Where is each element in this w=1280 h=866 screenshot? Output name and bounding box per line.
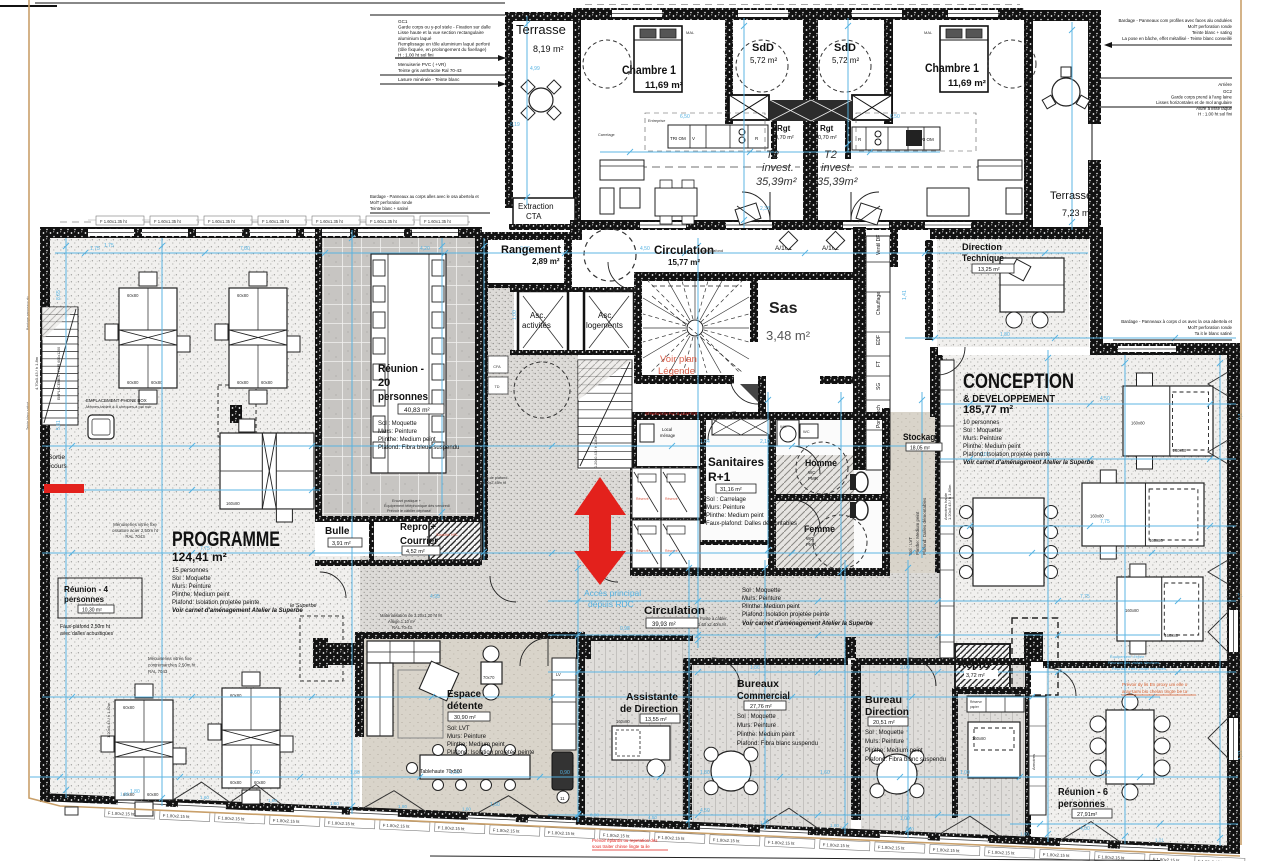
svg-text:Espace: Espace	[447, 689, 481, 700]
svg-text:1,60: 1,60	[490, 802, 500, 808]
svg-text:Technique: Technique	[962, 253, 1004, 263]
svg-text:T2: T2	[766, 149, 779, 161]
svg-text:papier: papier	[970, 705, 980, 709]
svg-text:F 1.60x1.35 ht: F 1.60x1.35 ht	[100, 219, 128, 224]
svg-text:F 1.60x1.35 ht: F 1.60x1.35 ht	[370, 219, 398, 224]
svg-text:Murs: Peinture: Murs: Peinture	[378, 429, 418, 435]
svg-text:Bureaux: Bureaux	[737, 679, 779, 690]
svg-text:Courrier: Courrier	[400, 536, 438, 547]
svg-text:ossature acier 2,50m ht: ossature acier 2,50m ht	[112, 528, 159, 533]
svg-text:160x80: 160x80	[1149, 538, 1163, 543]
svg-text:contremarches 2,50m ht: contremarches 2,50m ht	[148, 663, 196, 668]
svg-text:LV: LV	[556, 672, 561, 677]
svg-text:1,00: 1,00	[960, 770, 970, 776]
svg-text:Carrelage: Carrelage	[598, 133, 615, 137]
svg-text:T2: T2	[824, 149, 837, 161]
svg-text:11,69 m²: 11,69 m²	[645, 80, 683, 90]
svg-text:F 1.60x1.35 ht: F 1.60x1.35 ht	[262, 219, 290, 224]
svg-text:WC: WC	[803, 429, 810, 434]
svg-text:160x80: 160x80	[226, 501, 240, 506]
svg-text:Lisses horizontales et de mol: Lisses horizontales et de mol angulaire	[1156, 100, 1232, 105]
svg-text:aray tami bio chelan tingte be: aray tami bio chelan tingte be ta	[1122, 689, 1188, 694]
svg-text:1,86: 1,86	[750, 665, 760, 671]
svg-text:27,91m²: 27,91m²	[1077, 812, 1097, 818]
svg-text:Réunion - 4: Réunion - 4	[64, 584, 108, 594]
svg-text:0,98: 0,98	[590, 812, 599, 817]
svg-text:Asc.: Asc.	[598, 311, 614, 320]
svg-text:Garde corps prend à l'ang lai: Garde corps prend à l'ang laine	[1171, 95, 1233, 100]
svg-text:MolT perforation ronde: MolT perforation ronde	[370, 200, 413, 205]
svg-text:Réserve: Réserve	[970, 700, 982, 704]
svg-text:0,70 m²: 0,70 m²	[775, 135, 794, 141]
svg-text:Plinthe: Medium peint: Plinthe: Medium peint	[865, 748, 923, 754]
svg-text:1,80: 1,80	[905, 826, 914, 831]
svg-text:MolT perforation ronde: MolT perforation ronde	[1188, 24, 1233, 29]
svg-text:CFA: CFA	[493, 365, 501, 369]
svg-text:11: 11	[560, 796, 565, 801]
svg-text:Sol : Moquette: Sol : Moquette	[865, 730, 904, 736]
svg-text:Terrasse: Terrasse	[516, 22, 566, 37]
svg-text:Ventil DF: Ventil DF	[893, 232, 899, 252]
svg-text:Teinte blanc + satiné: Teinte blanc + satiné	[370, 206, 409, 211]
svg-text:2,89 m²: 2,89 m²	[532, 257, 560, 266]
svg-text:31,16 m²: 31,16 m²	[720, 487, 742, 493]
svg-text:160x80: 160x80	[1090, 514, 1104, 519]
svg-text:10,30 m²: 10,30 m²	[82, 608, 102, 614]
svg-text:Assistante: Assistante	[626, 692, 678, 703]
svg-text:Allège 1.10 m²: Allège 1.10 m²	[388, 619, 416, 624]
svg-text:160x80: 160x80	[616, 719, 630, 724]
svg-text:13,25 m²: 13,25 m²	[978, 267, 1000, 273]
svg-text:SdD: SdD	[752, 42, 774, 54]
svg-text:Plinthe: Medium peint: Plinthe: Medium peint	[378, 437, 436, 443]
svg-text:160x80: 160x80	[972, 736, 986, 741]
svg-text:Sol : Carrelage: Sol : Carrelage	[706, 497, 747, 503]
svg-text:6,50: 6,50	[680, 114, 690, 120]
svg-text:4,50: 4,50	[1080, 826, 1090, 832]
svg-text:Faux-plafond: Dalles démontabl: Faux-plafond: Dalles démontables	[706, 521, 797, 527]
svg-text:Plinthe: Medium peint: Plinthe: Medium peint	[447, 742, 505, 748]
svg-text:Teinte blanc + sating: Teinte blanc + sating	[1192, 30, 1233, 35]
svg-text:11,69 m²: 11,69 m²	[948, 78, 986, 88]
svg-text:Entreprise: Entreprise	[648, 119, 665, 123]
svg-text:35,39m²: 35,39m²	[817, 176, 858, 188]
svg-text:60x80: 60x80	[127, 293, 139, 298]
svg-text:6,50: 6,50	[890, 114, 900, 120]
svg-text:ménage: ménage	[660, 433, 676, 438]
svg-text:1,80: 1,80	[120, 792, 129, 797]
svg-text:Voir carnet d'aménagement Atel: Voir carnet d'aménagement Atelier la Sup…	[742, 621, 873, 627]
svg-text:TRI OM: TRI OM	[670, 136, 686, 141]
svg-text:20,51 m²: 20,51 m²	[873, 720, 895, 726]
svg-text:18,05 m²: 18,05 m²	[910, 446, 930, 452]
svg-text:1,80: 1,80	[1000, 332, 1010, 338]
svg-text:Direction: Direction	[962, 242, 1002, 252]
svg-text:WC: WC	[808, 470, 816, 475]
svg-text:Plafond: Fibra blanc suspendu: Plafond: Fibra blanc suspendu	[737, 741, 818, 747]
svg-text:Plinthe: Medium peint: Plinthe: Medium peint	[963, 444, 1021, 450]
svg-text:TD: TD	[494, 385, 499, 389]
svg-text:Homme: Homme	[805, 458, 837, 468]
svg-text:Ménuiseries vitrée fixe: Ménuiseries vitrée fixe	[113, 522, 157, 527]
svg-text:F 1.60x1.35 ht: F 1.60x1.35 ht	[424, 219, 452, 224]
svg-text:124,41 m²: 124,41 m²	[172, 550, 227, 564]
svg-text:1,41: 1,41	[902, 290, 908, 300]
svg-text:Réunion des visites électives: Réunion des visites électives	[1108, 660, 1159, 665]
svg-text:3,48 m²: 3,48 m²	[766, 328, 811, 343]
svg-text:1,80: 1,80	[130, 789, 140, 795]
svg-text:F 1.60x1.35 ht: F 1.60x1.35 ht	[316, 219, 344, 224]
svg-text:logements: logements	[586, 321, 623, 330]
svg-text:invest.: invest.	[762, 162, 794, 174]
svg-text:GC2: GC2	[1223, 89, 1233, 94]
svg-text:Plafond: Isolation projetée pe: Plafond: Isolation projetée peinte	[447, 750, 535, 756]
svg-text:Plinthe: Medium peint: Plinthe: Medium peint	[742, 604, 800, 610]
svg-text:4,50: 4,50	[700, 808, 710, 814]
svg-text:39,93 m²: 39,93 m²	[652, 622, 676, 628]
svg-text:Rangement: Rangement	[501, 244, 561, 256]
svg-text:8,65: 8,65	[56, 290, 62, 300]
svg-text:de Direction: de Direction	[620, 704, 678, 715]
svg-text:4,60: 4,60	[250, 770, 260, 776]
svg-text:depuis RDC: depuis RDC	[588, 599, 634, 609]
svg-text:La pose en bâche, effet métall: La pose en bâche, effet métallisé - Tein…	[1122, 36, 1232, 41]
svg-text:1,75: 1,75	[90, 246, 100, 252]
svg-text:Prévoir dy lis En proxy uni e: Prévoir dy lis En proxy uni elle o	[1122, 682, 1188, 687]
svg-text:invest.: invest.	[821, 162, 853, 174]
svg-text:Plafond: Isolation projetée pe: Plafond: Isolation projetée peinte	[172, 600, 260, 606]
svg-text:Prévoir éplantis ou repetation: Prévoir éplantis ou repetation des	[592, 838, 658, 843]
svg-text:Chauffage: Chauffage	[876, 292, 882, 315]
svg-text:Réunion -: Réunion -	[378, 363, 424, 375]
svg-text:1,80: 1,80	[350, 770, 360, 776]
svg-text:1,75: 1,75	[104, 243, 114, 249]
svg-text:(tôle fixquée, en prolongement: (tôle fixquée, en prolongement du fixe/l…	[398, 47, 487, 52]
svg-text:H : 1.00 ht sol fini: H : 1.00 ht sol fini	[398, 53, 434, 58]
svg-text:Ta it le blanc satiné: Ta it le blanc satiné	[1195, 331, 1233, 336]
svg-text:4,95: 4,95	[430, 594, 440, 600]
svg-text:4,50: 4,50	[640, 246, 650, 252]
svg-text:MAL: MAL	[686, 30, 695, 35]
svg-text:0,98: 0,98	[620, 626, 630, 632]
svg-text:8,19 m²: 8,19 m²	[533, 44, 564, 54]
svg-text:7,75: 7,75	[1100, 519, 1110, 525]
svg-text:Bardage - Panneaux au corps al: Bardage - Panneaux au corps alles avec l…	[370, 194, 480, 199]
svg-text:Faux-plafond 2,50m ht: Faux-plafond 2,50m ht	[60, 624, 111, 630]
svg-text:Plinthe: Medium peint: Plinthe: Medium peint	[737, 732, 795, 738]
svg-text:Murs: Peinture: Murs: Peinture	[706, 505, 746, 511]
svg-text:13,55 m²: 13,55 m²	[645, 717, 667, 723]
svg-text:Asc.: Asc.	[530, 311, 546, 320]
svg-text:Lasure minérale - Teinte blanc: Lasure minérale - Teinte blanc	[398, 77, 460, 82]
svg-text:1,60: 1,60	[462, 807, 471, 812]
svg-text:EMPLACEMENT PHONE BOX: EMPLACEMENT PHONE BOX	[86, 398, 147, 403]
svg-text:30,90 m²: 30,90 m²	[454, 715, 476, 721]
svg-text:Voir carnet d'aménagement Atel: Voir carnet d'aménagement Atelier la Sup…	[172, 608, 303, 614]
svg-text:2,33: 2,33	[760, 206, 770, 212]
svg-text:20: 20	[378, 377, 390, 389]
svg-text:Murs: Peinture: Murs: Peinture	[447, 734, 487, 740]
svg-text:0.80x2,45m ht: 0.80x2,45m ht	[482, 481, 507, 485]
svg-text:Voir carnet d'aménagement Atel: Voir carnet d'aménagement Atelier la Sup…	[963, 460, 1094, 466]
svg-text:Ménuiseries vitrée fixe: Ménuiseries vitrée fixe	[148, 656, 192, 661]
svg-text:Repro +: Repro +	[400, 522, 436, 533]
svg-text:EMPLACEMENT PMR 600x1200: EMPLACEMENT PMR 600x1200	[57, 347, 61, 400]
svg-text:Bulle: Bulle	[325, 526, 350, 537]
svg-text:Matérialisation de 3.20x1,20 h: Matérialisation de 3.20x1,20 ht M	[380, 613, 442, 618]
svg-text:40,83 m²: 40,83 m²	[404, 407, 430, 414]
svg-text:Chambre 1: Chambre 1	[622, 63, 676, 77]
svg-text:60x80: 60x80	[237, 380, 249, 385]
svg-text:Plinthe: Medium peint: Plinthe: Medium peint	[706, 513, 764, 519]
svg-text:1.20x0.43 / h 1.80m: 1.20x0.43 / h 1.80m	[947, 484, 952, 520]
svg-text:160x80: 160x80	[1125, 608, 1139, 613]
svg-text:Voir plan: Voir plan	[660, 354, 697, 365]
svg-text:H : 1.00 ht sol fini: H : 1.00 ht sol fini	[1198, 111, 1232, 116]
svg-text:Terrasse: Terrasse	[1050, 190, 1092, 202]
svg-text:4,99: 4,99	[530, 66, 540, 72]
svg-text:MolT perforation ronde: MolT perforation ronde	[1188, 325, 1233, 330]
svg-text:Murs: Peinture: Murs: Peinture	[742, 596, 782, 602]
svg-text:SG: SG	[876, 383, 882, 390]
svg-text:détente: détente	[447, 701, 483, 712]
svg-text:Armoires hautes 1.20x0.43 / h: Armoires hautes 1.20x0.43 / h 1.8m	[686, 676, 691, 740]
svg-text:V: V	[692, 136, 695, 141]
svg-text:Sortie: Sortie	[48, 454, 65, 461]
svg-text:1,80: 1,80	[398, 804, 407, 809]
svg-text:160x80: 160x80	[1164, 633, 1178, 638]
svg-text:Repro: Repro	[958, 659, 990, 671]
svg-text:Direction: Direction	[865, 707, 909, 718]
svg-text:Rgt: Rgt	[777, 124, 791, 133]
svg-text:1.20x0.43 / h 1.80m: 1.20x0.43 / h 1.80m	[594, 434, 598, 468]
svg-text:GC1: GC1	[398, 19, 408, 24]
svg-text:CTA: CTA	[526, 212, 542, 221]
svg-text:5,72 m²: 5,72 m²	[832, 56, 859, 65]
svg-text:Chambre 1: Chambre 1	[925, 61, 979, 75]
svg-text:Rgt: Rgt	[820, 124, 834, 133]
svg-text:Plafond: Dalles démontables: Plafond: Dalles démontables	[922, 497, 927, 555]
svg-text:1,00: 1,00	[512, 310, 518, 320]
svg-text:27,76 m²: 27,76 m²	[750, 704, 772, 710]
svg-text:1,21: 1,21	[1155, 837, 1164, 842]
svg-text:1.20x0.43 / h 1.82m: 1.20x0.43 / h 1.82m	[106, 702, 111, 738]
svg-text:Équipement d'épée: Équipement d'épée	[1110, 654, 1145, 659]
svg-text:MAL: MAL	[924, 30, 933, 35]
svg-text:Arrière: Arrière	[1218, 82, 1232, 87]
svg-text:Équipement téléphonique dès ve: Équipement téléphonique dès vendredi	[384, 503, 450, 508]
svg-text:60x80: 60x80	[237, 293, 249, 298]
svg-text:Sas: Sas	[769, 300, 798, 317]
svg-text:avec dalles acoustiques: avec dalles acoustiques	[60, 631, 114, 637]
svg-text:1,60: 1,60	[1100, 770, 1110, 776]
svg-text:1,04: 1,04	[700, 439, 710, 445]
svg-text:3,91 m²: 3,91 m²	[332, 541, 351, 547]
svg-text:0,90: 0,90	[560, 770, 570, 776]
svg-text:7,23 m²: 7,23 m²	[1062, 208, 1093, 218]
svg-text:4,52 m²: 4,52 m²	[406, 549, 425, 555]
svg-text:1,00: 1,00	[900, 816, 910, 822]
svg-text:Légende: Légende	[658, 366, 695, 377]
svg-text:SÉPARATION PVC À ADAPTER: SÉPARATION PVC À ADAPTER	[645, 411, 698, 416]
svg-text:aluminium laqué: aluminium laqué	[398, 36, 432, 41]
svg-text:0,70 m²: 0,70 m²	[818, 135, 837, 141]
svg-text:60x80: 60x80	[123, 705, 135, 710]
svg-text:1,60: 1,60	[830, 823, 839, 828]
svg-text:1,60: 1,60	[820, 770, 830, 776]
svg-text:4,20: 4,20	[420, 246, 430, 252]
svg-text:5,72 m²: 5,72 m²	[750, 56, 777, 65]
svg-text:Plinthe: Medium peint: Plinthe: Medium peint	[172, 592, 230, 598]
svg-text:Commercial: Commercial	[737, 691, 790, 702]
svg-text:Ventil DF: Ventil DF	[876, 235, 882, 255]
svg-text:7,75: 7,75	[1080, 594, 1090, 600]
svg-text:RAL 7043: RAL 7043	[125, 534, 145, 539]
svg-text:15,77 m²: 15,77 m²	[668, 258, 700, 267]
svg-text:Prévoir le câblier déphasé: Prévoir le câblier déphasé	[387, 509, 431, 513]
svg-text:Sol : Moquette: Sol : Moquette	[963, 428, 1002, 434]
svg-text:Bardage - Panneaux com profile: Bardage - Panneaux com profiles avec fac…	[1119, 18, 1233, 23]
svg-text:personnes: personnes	[1058, 799, 1105, 810]
svg-text:60x80: 60x80	[127, 380, 139, 385]
svg-text:8,19: 8,19	[510, 122, 520, 128]
svg-text:70x70: 70x70	[483, 675, 495, 680]
svg-text:Lisse haute et la vue section: Lisse haute et la vue section rectangula…	[398, 30, 484, 35]
svg-text:60x80: 60x80	[261, 380, 273, 385]
svg-text:FT: FT	[876, 361, 882, 367]
svg-text:Réservé: Réservé	[636, 549, 649, 553]
svg-text:Encart pratique +: Encart pratique +	[392, 499, 422, 503]
svg-text:Menuiserie PVC ( +VR): Menuiserie PVC ( +VR)	[398, 62, 446, 67]
svg-text:Stockage: Stockage	[903, 432, 940, 443]
svg-text:35,39m²: 35,39m²	[756, 176, 797, 188]
svg-text:Réunion - 6: Réunion - 6	[1058, 787, 1108, 798]
svg-text:Murs: Peinture: Murs: Peinture	[865, 739, 905, 745]
svg-text:Sol : Moquette: Sol : Moquette	[378, 421, 417, 427]
svg-text:160x80: 160x80	[1131, 421, 1145, 426]
svg-text:Plinthe: Medium peint: Plinthe: Medium peint	[915, 511, 920, 555]
svg-text:Local: Local	[662, 427, 672, 432]
svg-text:le Superbe: le Superbe	[290, 603, 317, 609]
svg-text:Plafond: Isolation projetée pe: Plafond: Isolation projetée peinte	[742, 612, 830, 618]
svg-text:1,80: 1,80	[268, 798, 277, 803]
svg-text:1,60: 1,60	[1020, 831, 1029, 836]
svg-text:60x80: 60x80	[230, 780, 242, 785]
svg-text:Bureau: Bureau	[865, 695, 902, 706]
svg-text:Faux plafond: Faux plafond	[700, 248, 723, 253]
svg-text:WC: WC	[780, 424, 787, 429]
svg-text:10 personnes: 10 personnes	[963, 420, 999, 426]
svg-text:4,50: 4,50	[1100, 396, 1110, 402]
svg-text:7,80: 7,80	[240, 246, 250, 252]
svg-text:Armoires: Armoires	[1031, 754, 1036, 770]
svg-text:1,80: 1,80	[700, 770, 710, 776]
svg-text:Réservé: Réservé	[636, 497, 649, 501]
svg-text:Accès principal: Accès principal	[584, 588, 641, 598]
svg-text:Plafond: Fibra blanc suspendu: Plafond: Fibra blanc suspendu	[865, 757, 946, 763]
svg-text:60x80: 60x80	[151, 380, 163, 385]
svg-text:4.70x0.43 / h 1.8m: 4.70x0.43 / h 1.8m	[34, 356, 39, 390]
svg-text:CONCEPTION: CONCEPTION	[963, 370, 1074, 393]
svg-text:Réservé: Réservé	[665, 549, 678, 553]
svg-text:PMR: PMR	[808, 476, 819, 481]
svg-text:EDF: EDF	[876, 335, 882, 345]
svg-text:2,00: 2,00	[900, 665, 910, 671]
svg-text:Poste à câbler: Poste à câbler	[700, 616, 727, 621]
svg-text:Remplissage en tôle aluminium: Remplissage en tôle aluminium laqué perf…	[398, 41, 491, 46]
svg-text:3,72 m²: 3,72 m²	[966, 673, 985, 679]
svg-text:Plafond: Isolation projetée pe: Plafond: Isolation projetée peinte	[963, 452, 1051, 458]
svg-text:Stratifié HPL: Stratifié HPL	[436, 532, 459, 537]
svg-text:Circulation: Circulation	[644, 605, 705, 617]
svg-text:Sol : LVT: Sol : LVT	[908, 537, 913, 555]
svg-text:Tablehaute 70x500: Tablehaute 70x500	[420, 769, 462, 775]
svg-text:Sol : Moquette: Sol : Moquette	[742, 588, 781, 594]
svg-text:SdD: SdD	[834, 42, 856, 54]
svg-text:5,81: 5,81	[56, 420, 62, 430]
svg-text:1,60: 1,60	[200, 795, 209, 800]
svg-text:Pas de plafond: Pas de plafond	[482, 476, 507, 480]
svg-text:personnes: personnes	[378, 391, 428, 403]
svg-text:Extraction: Extraction	[518, 202, 554, 211]
svg-text:Mêmes tablett à 8 chèques à p: Mêmes tablett à 8 chèques à pal noir	[86, 404, 152, 409]
svg-text:185,77 m²: 185,77 m²	[963, 404, 1013, 416]
svg-text:F 1.60x1.35 ht: F 1.60x1.35 ht	[154, 219, 182, 224]
svg-text:personnes: personnes	[64, 594, 104, 604]
svg-text:Sol : Moquette: Sol : Moquette	[172, 576, 211, 582]
svg-text:Murs: Peinture: Murs: Peinture	[172, 584, 212, 590]
svg-text:Garde corps ou y-pol stele - F: Garde corps ou y-pol stele - Fixation su…	[398, 25, 491, 30]
svg-text:1.60 x2.40m M: 1.60 x2.40m M	[698, 622, 726, 627]
svg-text:15 personnes: 15 personnes	[172, 568, 208, 574]
svg-text:Bardage - Panneaux à corps d o: Bardage - Panneaux à corps d os avec la …	[1121, 319, 1233, 324]
svg-text:PMR: PMR	[806, 542, 817, 547]
svg-text:RAL 70-43: RAL 70-43	[392, 625, 413, 630]
svg-text:Femme: Femme	[804, 524, 835, 534]
svg-text:Sanitaires: Sanitaires	[708, 455, 764, 469]
svg-text:Sol: LVT: Sol: LVT	[447, 726, 470, 732]
svg-text:activités: activités	[522, 321, 551, 330]
svg-text:Réservé: Réservé	[665, 497, 678, 501]
svg-text:Porte tech: Porte tech	[876, 405, 882, 428]
svg-text:1,80: 1,80	[760, 820, 769, 825]
svg-text:R+1: R+1	[708, 470, 731, 484]
svg-text:WC: WC	[806, 536, 814, 541]
svg-text:sous traiter chinse lingte ta: sous traiter chinse lingte ta ile	[592, 844, 650, 849]
svg-text:F 1.60x1.35 ht: F 1.60x1.35 ht	[208, 219, 236, 224]
svg-text:160x80: 160x80	[1173, 448, 1187, 453]
svg-text:60x80: 60x80	[147, 792, 159, 797]
svg-text:1,60: 1,60	[330, 801, 339, 806]
svg-text:2,10: 2,10	[760, 439, 770, 445]
svg-text:PROGRAMME: PROGRAMME	[172, 528, 280, 551]
svg-text:Réunion d'être visiter électi: Réunion d'être visiter électives	[1112, 666, 1166, 671]
svg-text:secours: secours	[44, 463, 68, 470]
svg-text:4,50: 4,50	[648, 815, 657, 820]
svg-text:RAL 7043: RAL 7043	[148, 669, 168, 674]
svg-text:Sol : Moquette: Sol : Moquette	[737, 714, 776, 720]
svg-text:Murs: Peinture: Murs: Peinture	[737, 723, 777, 729]
svg-text:Plafond: Fibra bleue suspendu: Plafond: Fibra bleue suspendu	[378, 445, 459, 451]
svg-text:Murs: Peinture: Murs: Peinture	[963, 436, 1003, 442]
svg-text:Teinte gris anthracite Ral 70-: Teinte gris anthracite Ral 70-43	[398, 68, 462, 73]
